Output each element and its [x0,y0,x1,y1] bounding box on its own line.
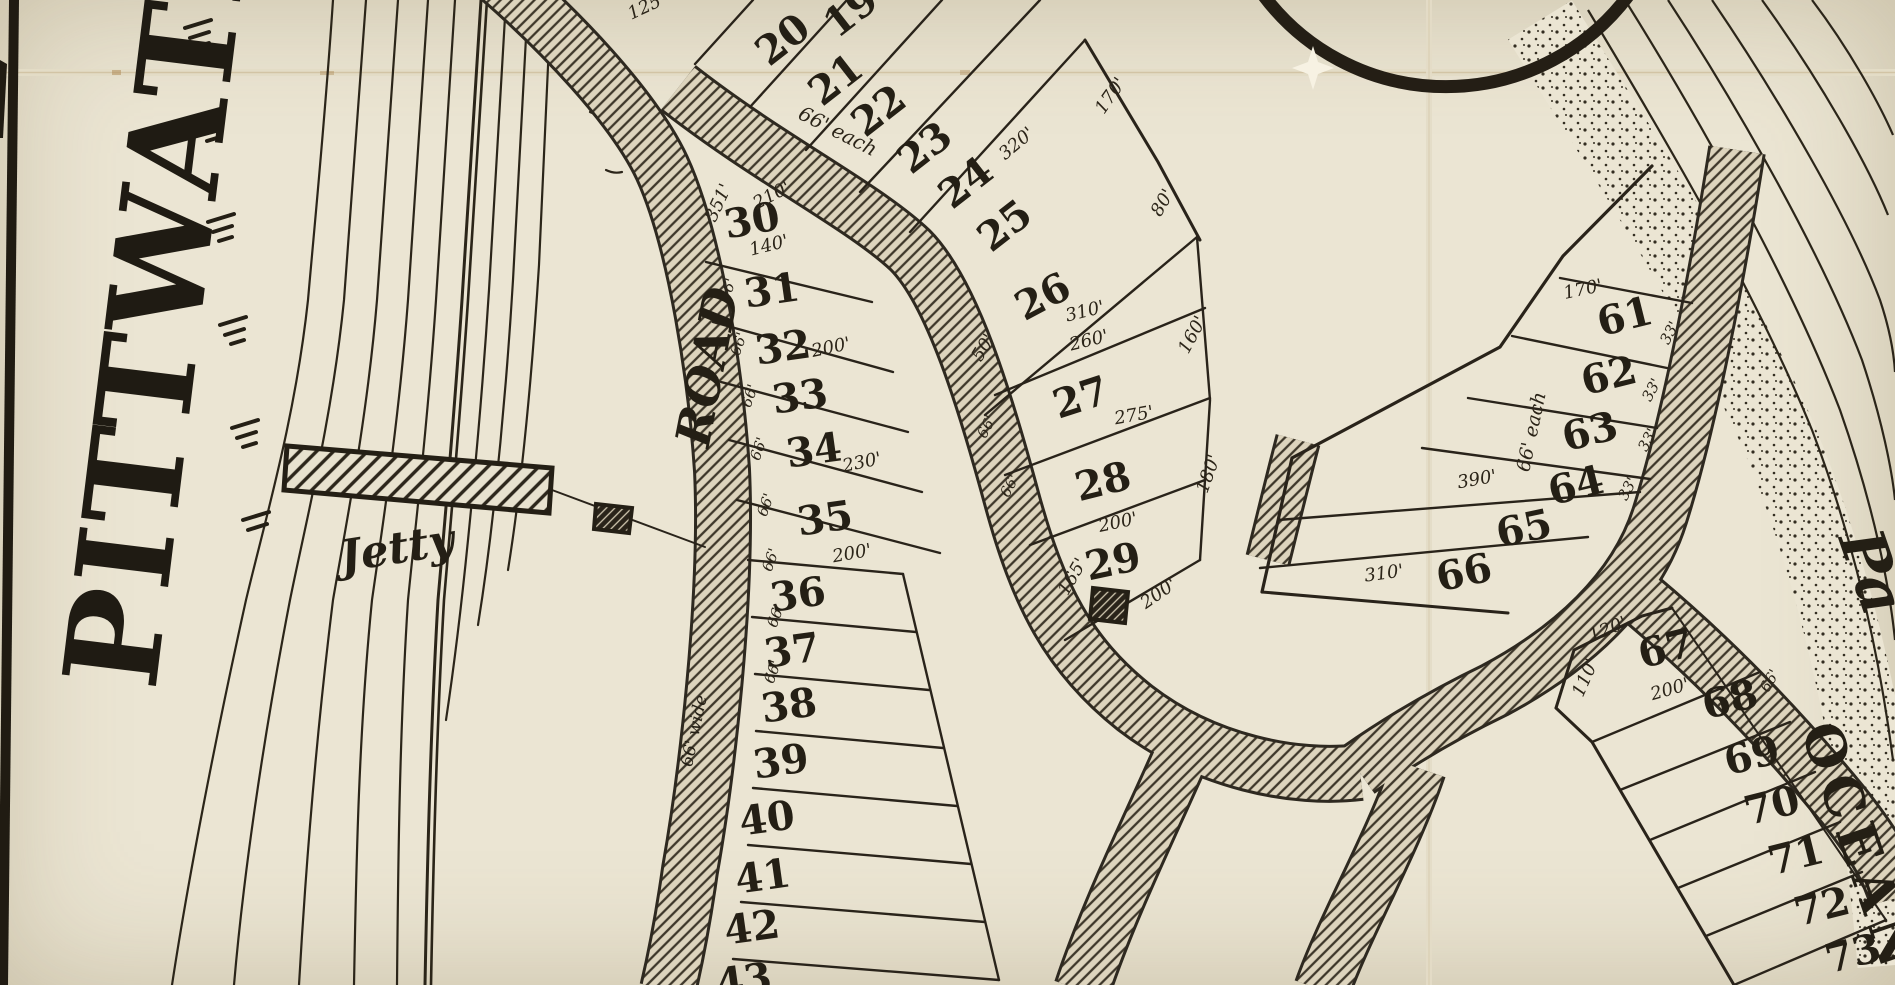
lot-number-67: 67 [1634,623,1698,675]
measurement-label: 66' [975,413,999,441]
measurement-label: 120' [1586,614,1629,645]
measurement-label: 66' [760,547,782,574]
measurement-label: 165' [1055,555,1090,598]
measurement-label: 390' [1456,468,1498,493]
measurement-label: 200' [1097,510,1139,536]
pacific-fragment: Pa [1829,522,1895,623]
measurement-label: 66' [765,603,787,630]
measurement-label: 50' [969,331,999,364]
lot-number-32: 32 [753,324,814,371]
lot-number-66: 66 [1433,548,1496,599]
measurement-label: 66' [748,436,770,463]
lot-number-38: 38 [759,682,820,729]
measurement-label: 200' [810,335,852,361]
lot-number-65: 65 [1493,504,1556,555]
lot-number-39: 39 [751,738,812,785]
measurement-label: 33' [1640,376,1664,404]
lot-number-43: 43 [714,957,775,985]
jetty-label: Jetty [337,518,457,579]
lot-number-25: 25 [971,193,1039,259]
measurement-label: 260' [1068,328,1110,355]
map-text-overlay: 1920212223242526272829303132333435363738… [0,0,1895,985]
lot-number-62: 62 [1577,350,1641,402]
lot-number-20: 20 [749,7,817,73]
measurement-label: 230' [841,450,883,476]
measurement-label: 66' [998,472,1022,500]
measurement-label: 180' [1194,452,1224,495]
lot-number-63: 63 [1558,406,1622,458]
road-label: ROAD [669,284,747,451]
measurement-label: 310' [1363,562,1404,585]
measurement-label: 66' [739,383,761,410]
measurement-label: 320' [996,124,1038,163]
lot-number-41: 41 [733,853,794,900]
measurement-label: 66' [1758,667,1783,695]
map-sheet: PITTWATER 192021222324252627282930313233… [0,0,1895,985]
lot-number-31: 31 [742,267,803,314]
measurement-label: 125' [625,0,668,23]
measurement-label: 33' [1616,475,1640,503]
lot-number-35: 35 [795,495,856,542]
lot-number-34: 34 [784,427,845,474]
lot-number-27: 27 [1048,370,1113,425]
measurement-label: 66' [755,492,777,519]
lot-number-69: 69 [1720,730,1784,782]
lot-number-71: 71 [1764,830,1828,882]
road-width-label: 66' wide [679,694,711,769]
measurement-label: 275' [1113,404,1155,429]
lot-number-42: 42 [722,904,783,951]
lot-number-28: 28 [1071,456,1135,508]
lot-number-70: 70 [1740,780,1804,832]
measurement-label: 33' [1636,426,1660,454]
measurement-label: 80' [1148,186,1178,219]
lot-number-33: 33 [770,373,831,420]
lot-number-64: 64 [1544,460,1608,512]
measurement-label: 160' [1176,313,1210,356]
measurement-label: 110' [1570,656,1602,699]
lot-number-40: 40 [737,795,798,842]
lot-number-61: 61 [1593,291,1657,343]
measurement-label: 200' [1138,575,1181,612]
measurement-label: 66' each [1514,390,1549,473]
measurement-label: 66' [762,659,784,686]
measurement-label: 170' [1092,75,1129,118]
measurement-label: 200' [831,542,873,567]
lot-number-19: 19 [817,0,885,45]
measurement-label: 33' [1658,319,1682,347]
lot-number-68: 68 [1698,674,1762,726]
measurement-label: 200' [1649,676,1692,704]
lot-number-29: 29 [1082,537,1145,588]
